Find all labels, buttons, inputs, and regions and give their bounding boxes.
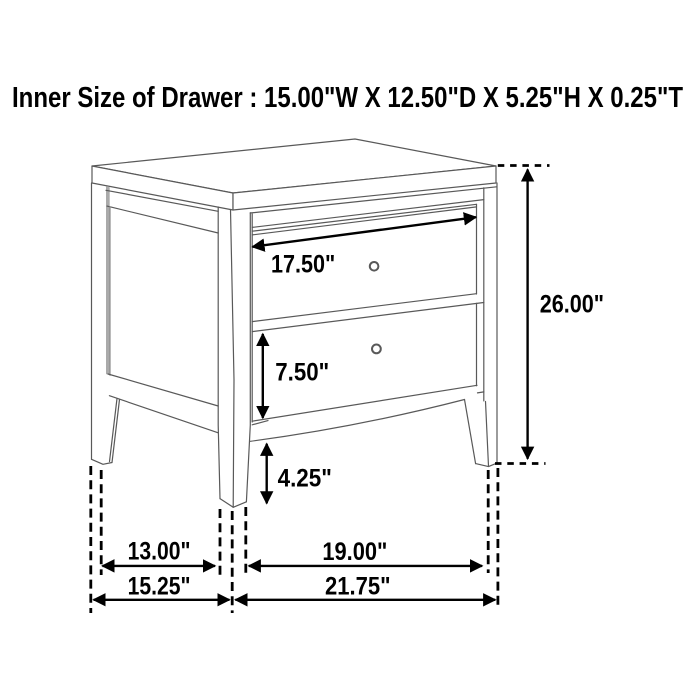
svg-text:19.00": 19.00" [322,538,387,566]
svg-text:26.00": 26.00" [540,291,604,319]
svg-text:17.50": 17.50" [271,251,335,279]
svg-text:13.00": 13.00" [128,538,191,566]
svg-text:15.25": 15.25" [128,572,191,600]
svg-text:7.50": 7.50" [275,359,329,387]
svg-text:4.25": 4.25" [278,465,332,493]
svg-text:21.75": 21.75" [325,572,391,600]
svg-text:Inner Size of Drawer : 15.00"W: Inner Size of Drawer : 15.00"W X 12.50"D… [12,82,683,114]
